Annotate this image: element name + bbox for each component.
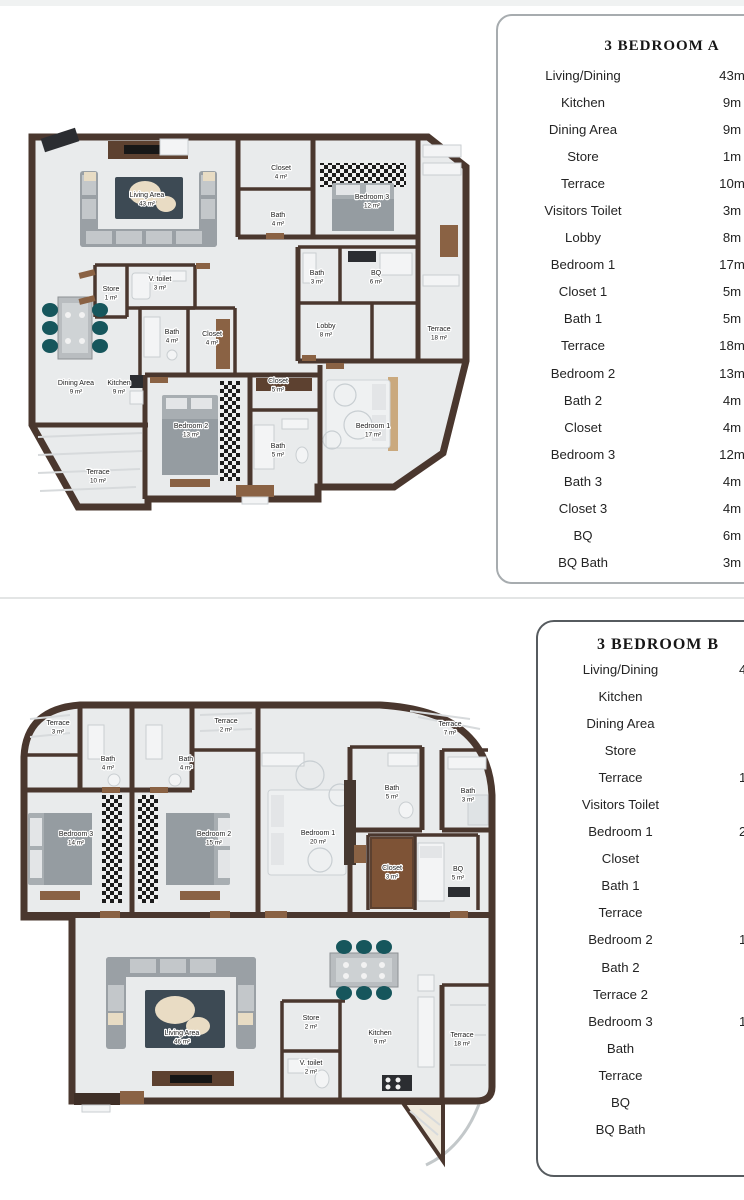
room-name: Visitors Toilet <box>538 797 703 812</box>
room-label: BQ6 m² <box>370 270 383 286</box>
floorplan-3-bedroom-a: Living Area43 m²Closet4 m²Bedroom 312 m²… <box>20 125 490 525</box>
room-name: Terrace <box>498 338 668 353</box>
room-label: Bath3 m² <box>461 788 476 804</box>
floorplan-b-svg: Terrace3 m²Bath4 m²Bath4 m²Terrace2 m²Be… <box>10 695 550 1175</box>
top-band <box>0 0 744 6</box>
room-name: Kitchen <box>538 689 703 704</box>
room-area: 5m <box>668 284 744 299</box>
room-name: Closet <box>498 420 668 435</box>
table-row: Bedroom 117m <box>498 257 744 272</box>
table-row: Terrace 2 <box>538 987 744 1002</box>
table-row: Terrace <box>538 1068 744 1083</box>
table-row: Visitors Toilet3m <box>498 203 744 218</box>
room-label: Bath5 m² <box>385 785 400 801</box>
room-name: Terrace <box>498 176 668 191</box>
room-name: Bedroom 1 <box>538 824 703 839</box>
room-area: 9m <box>668 122 744 137</box>
table-row: Closet 34m <box>498 501 744 516</box>
room-name: Closet 3 <box>498 501 668 516</box>
table-row: Terrace1 <box>538 770 744 785</box>
floorplan-3-bedroom-b: Terrace3 m²Bath4 m²Bath4 m²Terrace2 m²Be… <box>10 695 550 1175</box>
table-row: Bedroom 213m <box>498 366 744 381</box>
room-name: Closet 1 <box>498 284 668 299</box>
room-name: Bath 2 <box>538 960 703 975</box>
room-area: 1 <box>703 932 744 947</box>
room-area: 3m <box>668 555 744 570</box>
table-row: Terrace <box>538 905 744 920</box>
table-row: BQ Bath <box>538 1122 744 1137</box>
room-area: 6m <box>668 528 744 543</box>
room-name: Store <box>498 149 668 164</box>
table-row: Living/Dining4 <box>538 662 744 677</box>
table-row: Visitors Toilet <box>538 797 744 812</box>
table-row: Store1m <box>498 149 744 164</box>
floorplan-a-svg: Living Area43 m²Closet4 m²Bedroom 312 m²… <box>20 125 490 525</box>
bedroom2-furniture <box>162 381 240 487</box>
table-row: Terrace18m <box>498 338 744 353</box>
room-name: Living/Dining <box>498 68 668 83</box>
table-row: Kitchen9m <box>498 95 744 110</box>
room-label: Store2 m² <box>303 1015 320 1031</box>
room-label: Bath4 m² <box>101 756 116 772</box>
room-name: Bath 3 <box>498 474 668 489</box>
room-name: Terrace 2 <box>538 987 703 1002</box>
table-row: Bath 34m <box>498 474 744 489</box>
table-row: Bath 1 <box>538 878 744 893</box>
table-row: BQ6m <box>498 528 744 543</box>
room-name: Terrace <box>538 1068 703 1083</box>
room-name: Bedroom 1 <box>498 257 668 272</box>
room-name: Kitchen <box>498 95 668 110</box>
room-area: 8m <box>668 230 744 245</box>
room-area: 4 <box>703 662 744 677</box>
room-area: 3m <box>668 203 744 218</box>
room-area: 1m <box>668 149 744 164</box>
room-label: Bath4 m² <box>179 756 194 772</box>
room-name: BQ Bath <box>498 555 668 570</box>
room-name: Bedroom 3 <box>498 447 668 462</box>
room-label: Store1 m² <box>103 286 120 302</box>
dining-set <box>42 297 108 359</box>
table-row: Bedroom 312m <box>498 447 744 462</box>
page: { "colors": { "wall": "#4a372e", "wood":… <box>0 0 744 1200</box>
room-area: 4m <box>668 420 744 435</box>
room-area: 4m <box>668 501 744 516</box>
table-row: Bath <box>538 1041 744 1056</box>
table-row: Lobby8m <box>498 230 744 245</box>
room-name: Terrace <box>538 770 703 785</box>
room-label: Bath5 m² <box>271 443 286 459</box>
room-name: Closet <box>538 851 703 866</box>
room-name: Bath 1 <box>538 878 703 893</box>
room-name: Visitors Toilet <box>498 203 668 218</box>
table-row: Terrace10m <box>498 176 744 191</box>
room-area: 10m <box>668 176 744 191</box>
room-area: 43m <box>668 68 744 83</box>
table-b-rows: Living/Dining4KitchenDining AreaStoreTer… <box>538 656 744 1143</box>
table-row: Bath 15m <box>498 311 744 326</box>
table-row: Dining Area <box>538 716 744 731</box>
room-label: Bath4 m² <box>165 329 180 345</box>
room-area: 5m <box>668 311 744 326</box>
room-name: Lobby <box>498 230 668 245</box>
table-row: Closet 15m <box>498 284 744 299</box>
room-area: 2 <box>703 824 744 839</box>
room-area: 9m <box>668 95 744 110</box>
room-name: BQ Bath <box>538 1122 703 1137</box>
area-table-3-bedroom-b: 3 BEDROOM B Living/Dining4KitchenDining … <box>536 620 744 1177</box>
room-area: 4m <box>668 393 744 408</box>
room-area: 12m <box>668 447 744 462</box>
room-area: 13m <box>668 366 744 381</box>
room-name: Bedroom 3 <box>538 1014 703 1029</box>
room-name: Store <box>538 743 703 758</box>
room-label: BQ5 m² <box>452 866 465 882</box>
area-table-3-bedroom-a: 3 BEDROOM A Living/Dining43mKitchen9mDin… <box>496 14 744 584</box>
dining-set <box>330 940 398 1000</box>
table-a-rows: Living/Dining43mKitchen9mDining Area9mSt… <box>498 62 744 576</box>
table-row: Closet <box>538 851 744 866</box>
room-name: Living/Dining <box>538 662 703 677</box>
room-name: Bath 1 <box>498 311 668 326</box>
room-name: Dining Area <box>498 122 668 137</box>
table-row: Bath 2 <box>538 960 744 975</box>
table-b-title: 3 BEDROOM B <box>538 636 744 654</box>
room-area: 17m <box>668 257 744 272</box>
room-name: Bath 2 <box>498 393 668 408</box>
section-divider <box>0 597 744 599</box>
room-name: Bedroom 2 <box>498 366 668 381</box>
kitchen-appliance <box>130 375 143 388</box>
table-row: Bedroom 31 <box>538 1014 744 1029</box>
room-label: Bath4 m² <box>271 212 286 228</box>
room-area: 1 <box>703 770 744 785</box>
room-name: BQ <box>498 528 668 543</box>
room-name: Dining Area <box>538 716 703 731</box>
room-area: 1 <box>703 1014 744 1029</box>
room-name: Bedroom 2 <box>538 932 703 947</box>
room-name: BQ <box>538 1095 703 1110</box>
table-row: Bedroom 21 <box>538 932 744 947</box>
room-area: 4m <box>668 474 744 489</box>
table-row: BQ Bath3m <box>498 555 744 570</box>
table-row: Living/Dining43m <box>498 68 744 83</box>
table-a-title: 3 BEDROOM A <box>498 38 744 55</box>
room-name: Terrace <box>538 905 703 920</box>
table-row: Bath 24m <box>498 393 744 408</box>
room-name: Bath <box>538 1041 703 1056</box>
table-row: Closet4m <box>498 420 744 435</box>
bedroom1-furniture <box>323 377 398 451</box>
table-row: Kitchen <box>538 689 744 704</box>
table-row: Dining Area9m <box>498 122 744 137</box>
room-area: 18m <box>668 338 744 353</box>
table-row: Store <box>538 743 744 758</box>
room-label: Bath3 m² <box>310 270 325 286</box>
table-row: BQ <box>538 1095 744 1110</box>
table-row: Bedroom 12 <box>538 824 744 839</box>
